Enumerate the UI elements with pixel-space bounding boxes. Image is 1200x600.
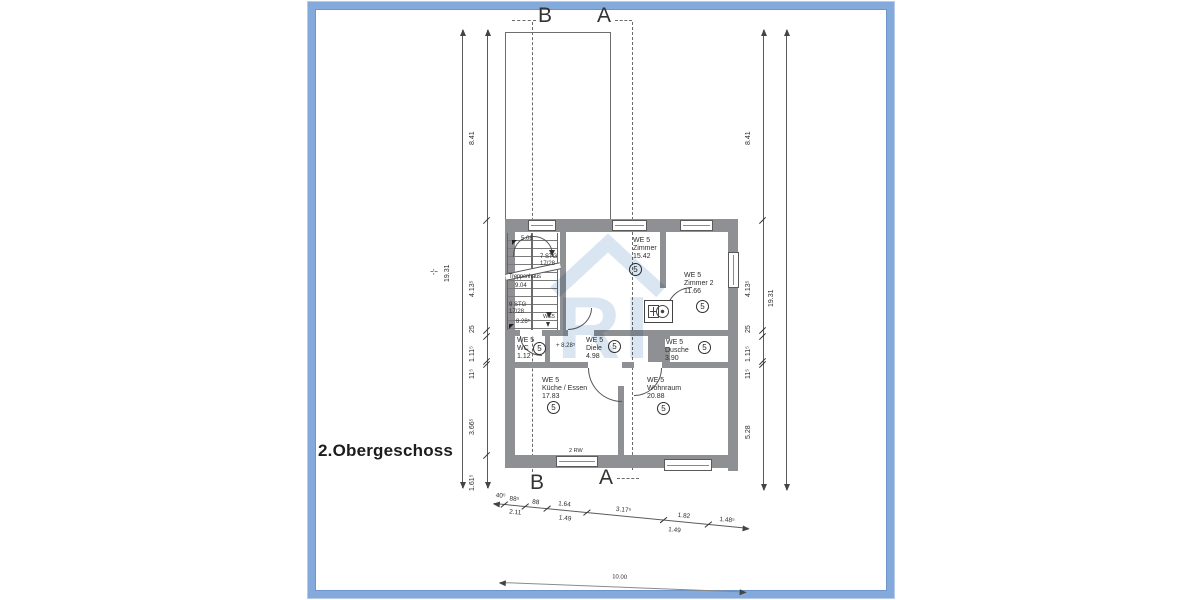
- dim-line-right-outer: [786, 30, 787, 490]
- dim-label: 11⁵: [469, 369, 476, 379]
- dim-label: 1.82: [677, 512, 690, 520]
- watermark-text: RI: [557, 278, 653, 368]
- room-area-badge: 5: [696, 300, 709, 313]
- dim-label: 40⁵: [495, 492, 506, 500]
- dim-label: 8.41: [469, 131, 476, 145]
- stair-area: 9.04: [515, 283, 527, 290]
- section-line-a-stub-bottom: [617, 478, 639, 479]
- dim-label: 1.11⁵: [469, 346, 476, 362]
- section-line-a-stub-top: [615, 20, 632, 21]
- window-top-3: [680, 220, 713, 231]
- section-line-b-stub: [512, 20, 536, 21]
- dim-label: 25: [745, 325, 752, 333]
- dim-label: 3.17⁵: [616, 506, 632, 514]
- dim-label: 4.13⁵: [469, 280, 476, 297]
- floor-title: 2.Obergeschoss: [318, 441, 453, 461]
- stair-flight-b: 9 STG: [509, 302, 526, 309]
- window-bottom-2: [664, 459, 712, 471]
- window-bottom-1: [556, 456, 598, 467]
- stair-level-bottom: 8.28⁵: [516, 319, 530, 326]
- stair-level-top: 5.08: [521, 236, 533, 243]
- dim-label: 88: [532, 499, 540, 507]
- dim-label: 5.28: [745, 425, 752, 439]
- section-label-a-bottom: A: [599, 466, 613, 490]
- room-area-badge: 5: [547, 401, 560, 414]
- dim-line-left-inner: [487, 30, 488, 488]
- room-label: WE 5Wohnraum20.88: [647, 377, 681, 401]
- dim-label: 2.11: [509, 508, 522, 516]
- room-area-badge: 5: [698, 341, 711, 354]
- dim-label: 1.11⁵: [745, 346, 752, 362]
- dim-label: 1.61⁵: [469, 474, 476, 491]
- dim-label: 1.64: [558, 500, 571, 508]
- dim-label: 3.66⁵: [469, 418, 476, 435]
- axis-mark: -¦-: [431, 269, 438, 275]
- level-marker-icon: [509, 324, 514, 329]
- watermark-logo: RI: [543, 230, 673, 368]
- dim-label: 1.49: [668, 526, 681, 534]
- dim-line-right-inner: [763, 30, 764, 490]
- room-label: WE 5WC1.12: [517, 337, 534, 361]
- dim-label: 10.00: [612, 574, 627, 582]
- room-area-badge: 5: [657, 402, 670, 415]
- dim-label: 8.41: [745, 131, 752, 145]
- dim-label: 1.48⁵: [719, 516, 735, 524]
- stair-riser-b: 17/28: [509, 309, 524, 316]
- dim-label: 19.31: [768, 289, 775, 307]
- room-label: WE 5Zimmer 211.66: [684, 272, 714, 296]
- dim-label: 88⁵: [509, 495, 520, 503]
- dim-line-left-outer: [462, 30, 463, 488]
- dim-label: 25: [469, 325, 476, 333]
- stair-name: Treppenhaus: [509, 274, 541, 281]
- section-label-b-bottom: B: [530, 471, 544, 495]
- window-type-label: 2 RW: [569, 448, 583, 454]
- dim-label: 1.49: [558, 514, 571, 522]
- upper-building-outline: [505, 32, 611, 221]
- window-right: [728, 252, 739, 288]
- scanned-floor-plan-page: 2.Obergeschoss B B A A 2 RW 5.08: [0, 0, 1200, 600]
- room-label: WE 5Küche / Essen17.83: [542, 377, 587, 401]
- dim-label: 11⁵: [745, 369, 752, 379]
- dim-label: 19.31: [444, 264, 451, 282]
- dim-label: 4.13⁵: [745, 280, 752, 297]
- section-label-a-top: A: [597, 4, 611, 28]
- section-label-b-top: B: [538, 4, 552, 28]
- level-marker-icon: [512, 240, 517, 245]
